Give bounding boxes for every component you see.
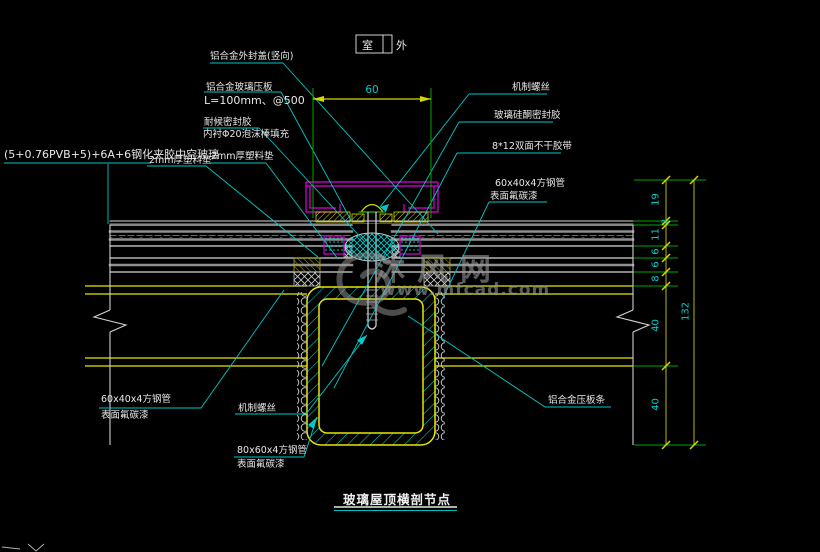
watermark-site-url: www.mfcad.com <box>380 280 550 300</box>
label-tube60-right-2: 表面氟碳漆 <box>490 191 538 202</box>
label-tube60-right-1: 60x40x4方钢管 <box>495 178 565 189</box>
drawing-title: 玻璃屋顶横剖节点 <box>332 489 462 508</box>
dim-40a: 40 <box>651 311 662 341</box>
dim-top-width: 60 <box>357 84 387 96</box>
dim-2: 2 <box>661 207 670 237</box>
label-screw-bottom: 机制螺丝 <box>238 403 276 414</box>
ridge-cap <box>306 182 438 212</box>
room-box-inside-text: 室 <box>362 37 373 53</box>
label-tube60-left-1: 60x40x4方钢管 <box>101 394 171 405</box>
dim-total-132: 132 <box>681 297 692 327</box>
label-tube80-1: 80x60x4方钢管 <box>237 445 307 456</box>
label-screw-top: 机制螺丝 <box>512 82 550 93</box>
label-silicone: 玻璃硅酮密封胶 <box>494 110 561 121</box>
bolt-head <box>361 205 383 213</box>
coil-left <box>297 292 307 440</box>
room-box-outside-text: 外 <box>396 37 407 53</box>
label-press-plate-1: 铝合金玻璃压板 <box>206 82 273 93</box>
coil-right <box>435 292 445 440</box>
cad-canvas: 铝合金外封盖(竖向) 铝合金玻璃压板 L=100mm、@500 耐候密封胶 内衬… <box>0 0 820 552</box>
label-alu-strip: 铝合金压板条 <box>548 395 605 406</box>
steel-tube-80x60 <box>297 287 445 445</box>
corner-marks <box>2 544 44 551</box>
dimension-60 <box>313 88 431 218</box>
label-sealant-2: 内衬Φ20泡沫棒填充 <box>203 129 289 140</box>
label-cap: 铝合金外封盖(竖向) <box>210 51 293 62</box>
dim-40b: 40 <box>651 390 662 420</box>
label-tube80-2: 表面氟碳漆 <box>237 459 285 470</box>
label-sealant-1: 耐候密封胶 <box>204 117 252 128</box>
label-pad-right: 2mm厚塑料垫 <box>211 151 274 162</box>
label-press-plate-2: L=100mm、@500 <box>204 95 305 106</box>
label-tape: 8*12双面不干胶带 <box>492 141 572 152</box>
label-tube60-left-2: 表面氟碳漆 <box>101 410 149 421</box>
dimension-chain <box>634 176 706 449</box>
label-pad-left: 2mm厚塑料垫 <box>149 155 212 166</box>
dim-8: 8 <box>651 264 662 294</box>
